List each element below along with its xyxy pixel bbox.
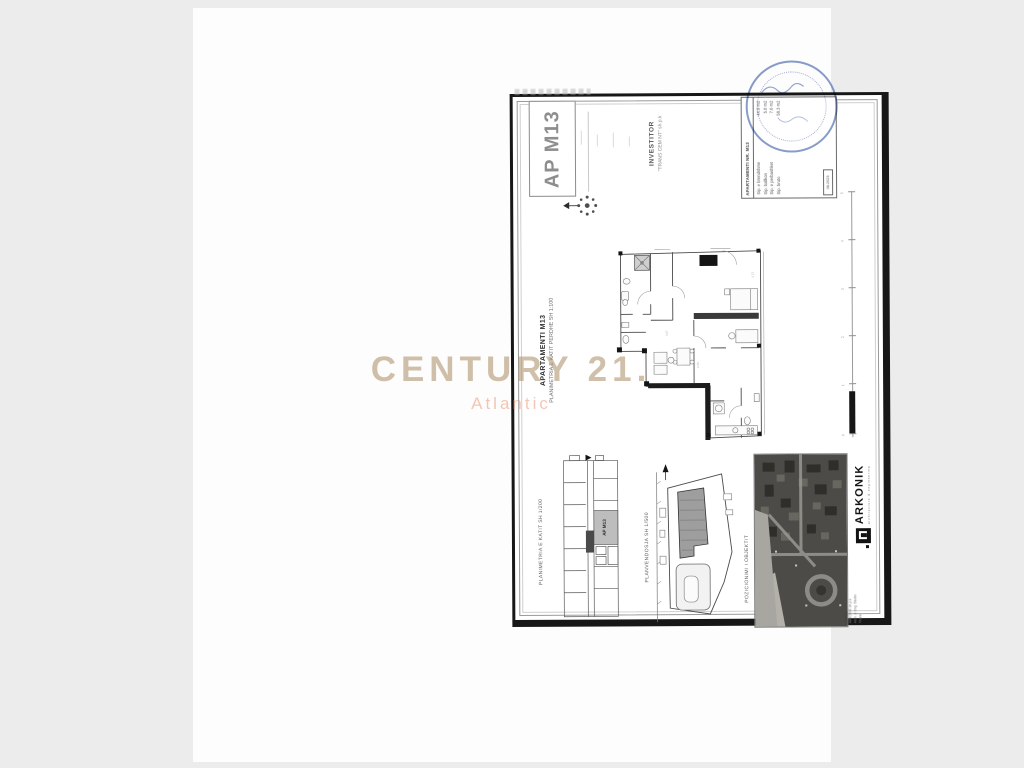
firm-tagline: architecture & engineering (867, 464, 871, 524)
key-plan-unit-tag: AP M13 (602, 519, 607, 536)
investor-name: "TRANS CEM NT" sh.p.k (657, 115, 663, 171)
main-plan-title-block: APARTAMENTI M13 PLANIMETRIA E KATIT PERD… (536, 291, 559, 409)
investor-block: INVESTITOR "TRANS CEM NT" sh.p.k (641, 104, 671, 182)
key-plan-label: PLANIMETRIA E KATIT SH 1/200 (533, 463, 550, 621)
key-plan: AP M13 (555, 454, 644, 622)
scan-artifact (515, 89, 591, 95)
drawing-sheet: AP M13 INVESTITOR "TRANS CEM NT" sh.p.k … (510, 92, 892, 627)
scanned-floorplan-page: { "watermark": {"brand": "CENTURY 21.", … (0, 0, 1024, 768)
svg-text:4.12: 4.12 (751, 272, 755, 278)
investor-label: INVESTITOR (648, 115, 655, 171)
svg-text:2.60: 2.60 (696, 362, 700, 368)
firm-logo-block: ARKONIK architecture & engineering (846, 455, 880, 543)
position-label: POZICIONIMI I OBJEKTIT (741, 510, 754, 628)
apartment-badge: AP M13 (529, 101, 577, 197)
apartment-badge-label: AP M13 (541, 110, 564, 188)
scale-bar-fill (849, 391, 855, 433)
site-plan-label: PLANVENDOSJA SH 1/500 (640, 468, 655, 626)
north-compass-icon (563, 189, 601, 223)
graphic-scale-bar: 5 4 3 2 1 0 (843, 191, 858, 437)
faint-header-marks (577, 122, 635, 172)
main-plan-subtitle: PLANIMETRIA E KATIT PERDHE SH 1:100 (548, 297, 555, 402)
site-plan (654, 464, 742, 626)
arkonik-logo-icon (855, 528, 870, 543)
aerial-photo (753, 453, 848, 627)
credits-block: PUNOI ARKONIK sh.p.k Arch. & Eng. Studio… (844, 547, 868, 623)
svg-text:3.87: 3.87 (665, 330, 669, 336)
stamp-signature-icon (747, 62, 835, 150)
scanned-paper: AP M13 INVESTITOR "TRANS CEM NT" sh.p.k … (193, 8, 831, 762)
blue-round-stamp-icon (745, 60, 837, 152)
firm-name: ARKONIK (855, 464, 866, 524)
main-plan-title: APARTAMENTI M13 (539, 297, 547, 402)
title-block-date: 06.2023 (823, 169, 833, 195)
apartment-floor-plan: 3.87 4.12 2.60 (610, 236, 773, 445)
